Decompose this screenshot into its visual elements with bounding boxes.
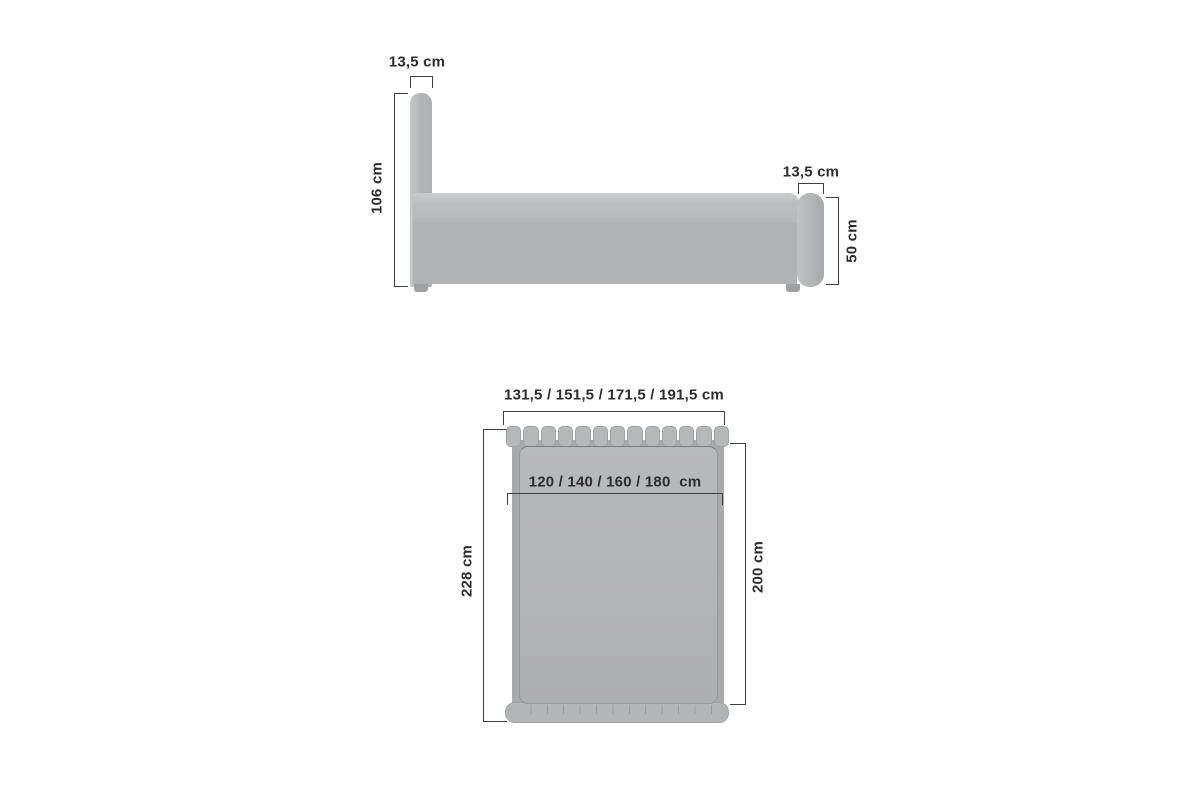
headboard-slat <box>662 426 677 447</box>
headboard-height-bracket <box>394 93 408 287</box>
headboard-slat <box>541 426 556 447</box>
rear-leg <box>786 284 800 292</box>
headboard-slat <box>593 426 608 447</box>
footboard-side-shape <box>797 193 824 287</box>
headboard-slat <box>645 426 660 447</box>
bed-dimension-diagram: 13,5 cm 106 cm 13,5 cm 33,5 cm 50 cm 131… <box>0 0 1200 800</box>
mattress-length-label: 200 cm <box>750 541 767 593</box>
headboard-top-slats <box>506 426 729 447</box>
headboard-slat <box>627 426 642 447</box>
mattress-width-line <box>507 493 723 505</box>
overall-length-label: 228 cm <box>459 545 476 597</box>
overall-width-label: 131,5 / 151,5 / 171,5 / 191,5 cm <box>504 387 724 404</box>
headboard-slat <box>696 426 711 447</box>
mattress-width-label: 120 / 140 / 160 / 180 cm <box>529 474 702 491</box>
overall-length-bracket <box>483 429 507 722</box>
front-leg <box>414 284 428 292</box>
footboard-top-shape <box>505 702 729 723</box>
footboard-height-label: 50 cm <box>844 219 861 263</box>
headboard-width-label: 13,5 cm <box>389 54 445 71</box>
footboard-height-bracket <box>826 197 839 285</box>
headboard-slat <box>523 426 538 447</box>
headboard-width-bracket <box>410 76 433 88</box>
headboard-slat <box>506 426 521 447</box>
mattress-side-shape <box>413 193 799 223</box>
footboard-slat-divisions <box>515 705 719 714</box>
headboard-slat <box>714 426 729 447</box>
headboard-slat <box>558 426 573 447</box>
mattress-length-bracket <box>730 443 746 705</box>
headboard-slat <box>575 426 590 447</box>
headboard-slat <box>679 426 694 447</box>
overall-width-bracket <box>503 411 725 425</box>
footboard-width-label: 13,5 cm <box>783 164 839 181</box>
headboard-height-label: 106 cm <box>369 162 386 214</box>
bed-base-side-shape <box>413 221 797 284</box>
headboard-slat <box>610 426 625 447</box>
